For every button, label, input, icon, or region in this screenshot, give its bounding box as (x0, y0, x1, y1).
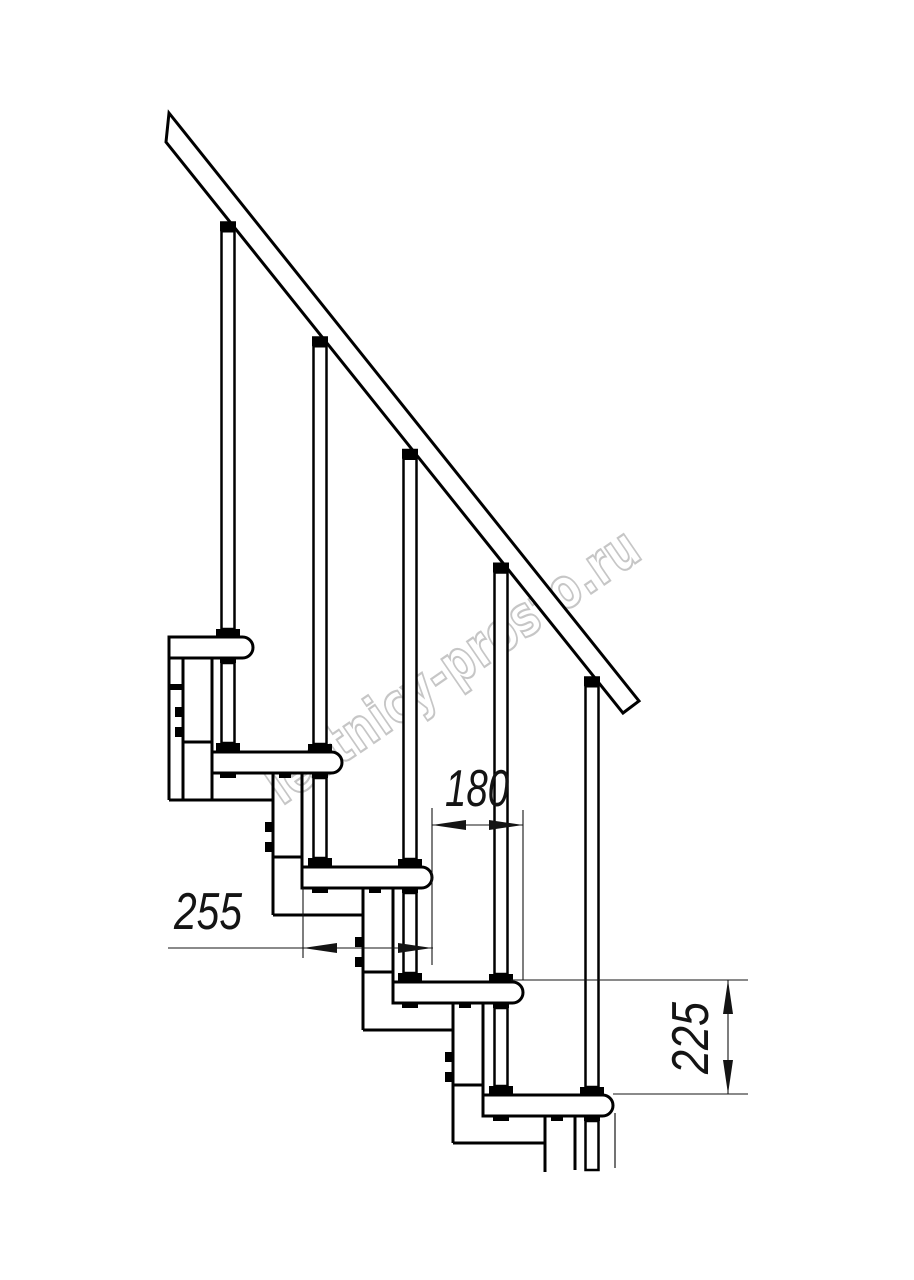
arrowhead-down (723, 1060, 733, 1094)
baluster-tread-collar (308, 744, 332, 752)
dimension-step-rise-label: 225 (662, 1001, 720, 1075)
arrowhead-left (432, 820, 466, 830)
baluster-base-collar (489, 1086, 513, 1095)
tread (393, 982, 523, 1003)
baluster (586, 686, 599, 1087)
module-bolt (175, 727, 183, 737)
baluster-base-collar (308, 858, 332, 867)
baluster (495, 1008, 508, 1086)
baluster-base-collar (398, 973, 422, 982)
arrowhead-up (723, 980, 733, 1014)
arrowhead-left (303, 943, 337, 953)
baluster-tread-collar (216, 629, 240, 637)
baluster (586, 1121, 599, 1170)
baluster-tread-collar (580, 1087, 604, 1095)
dimension-tread-depth-label: 255 (173, 883, 243, 941)
tread-mount-nut (551, 1116, 563, 1121)
baluster-rail-cap (584, 676, 600, 686)
baluster-rail-cap (312, 336, 328, 346)
baluster-rail-cap (493, 563, 509, 573)
dimension-annotations (168, 808, 748, 1094)
dimension-step-run-label: 180 (445, 760, 509, 818)
baluster-rail-cap (220, 221, 236, 231)
baluster-base-nut (312, 888, 328, 893)
tread (302, 867, 432, 888)
staircase-drawing: lestnicy-prosto.ru 180 255 225 (0, 0, 914, 1280)
baluster (222, 231, 235, 629)
baluster (314, 778, 327, 858)
module-bolt (355, 937, 363, 947)
baluster (404, 459, 417, 859)
tread-mount-nut (459, 1003, 471, 1008)
staircase-structure (166, 113, 639, 1172)
module-bolt (445, 1052, 453, 1062)
baluster (404, 893, 417, 973)
tread (483, 1095, 613, 1116)
tread (169, 637, 253, 658)
baluster-tread-collar (489, 974, 513, 982)
tread-mount-nut (279, 773, 291, 778)
module-bolt (175, 707, 183, 717)
left-structure-bolt (169, 684, 183, 690)
baluster-rail-cap (402, 449, 418, 459)
baluster-tread-collar (398, 859, 422, 867)
baluster (314, 346, 327, 744)
baluster (222, 663, 235, 743)
tread (212, 752, 342, 773)
baluster-base-nut (493, 1116, 509, 1121)
tread-mount-nut (369, 888, 381, 893)
drawing-page: lestnicy-prosto.ru 180 255 225 (0, 0, 914, 1280)
baluster-base-nut (220, 773, 236, 778)
module-bolt (265, 822, 273, 832)
baluster-base-nut (402, 1003, 418, 1008)
baluster-base-collar (216, 743, 240, 752)
module-bolt (265, 842, 273, 852)
module-bolt (445, 1072, 453, 1082)
module-bolt (355, 957, 363, 967)
